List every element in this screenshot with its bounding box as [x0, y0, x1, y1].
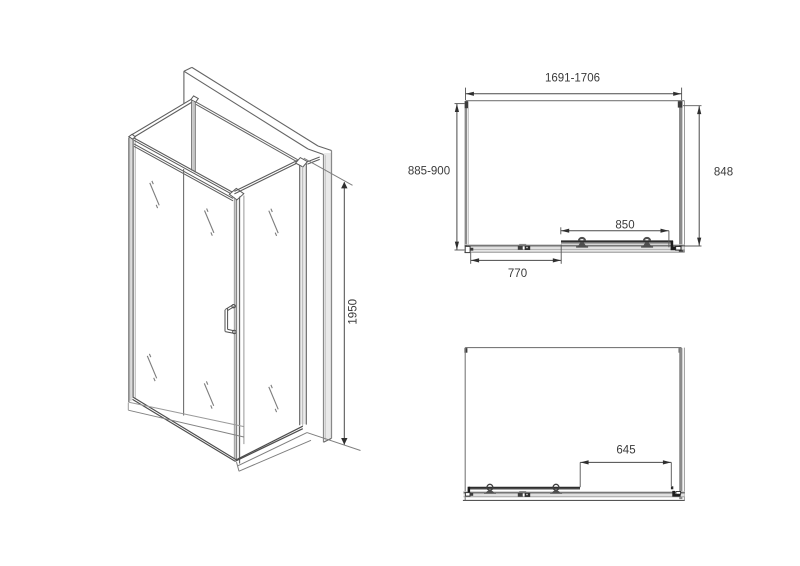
svg-text:1950: 1950 — [347, 299, 359, 325]
svg-text:1691-1706: 1691-1706 — [545, 73, 600, 85]
svg-text:645: 645 — [616, 445, 635, 457]
svg-text:770: 770 — [508, 268, 527, 280]
svg-text:850: 850 — [615, 219, 634, 231]
svg-text:885-900: 885-900 — [408, 166, 450, 178]
svg-text:848: 848 — [714, 167, 733, 179]
